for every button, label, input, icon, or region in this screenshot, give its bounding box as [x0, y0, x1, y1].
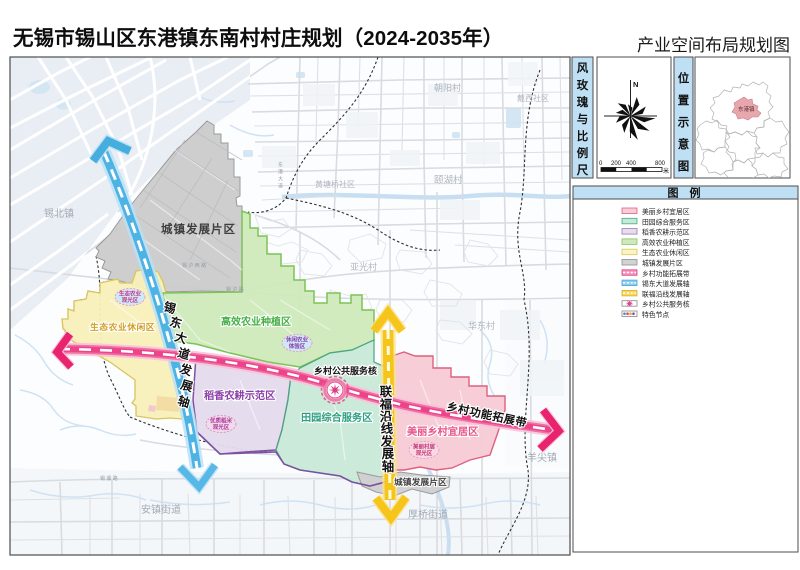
svg-text:城镇发展片区: 城镇发展片区: [394, 476, 447, 487]
svg-text:优质稻米: 优质稻米: [210, 417, 233, 425]
svg-text:产业空间布局规划图: 产业空间布局规划图: [637, 36, 790, 55]
svg-text:厚桥街道: 厚桥街道: [408, 508, 448, 521]
svg-text:戴西社区: 戴西社区: [517, 93, 549, 103]
svg-text:美丽村居: 美丽村居: [413, 443, 436, 451]
svg-text:锡东大道发展轴: 锡东大道发展轴: [642, 279, 690, 288]
svg-text:田园综合服务区: 田园综合服务区: [642, 217, 690, 226]
svg-text:锡 虞 路: 锡 虞 路: [100, 475, 118, 482]
svg-text:朝阳村: 朝阳村: [434, 82, 461, 93]
svg-text:锡 沪 西 路: 锡 沪 西 路: [182, 262, 206, 269]
svg-text:乡村公共服务核: 乡村公共服务核: [642, 300, 690, 309]
svg-text:休闲农业: 休闲农业: [285, 336, 309, 344]
svg-text:美丽乡村宜居区: 美丽乡村宜居区: [407, 425, 478, 438]
svg-text:生态农业休闲区: 生态农业休闲区: [642, 248, 690, 257]
svg-text:田园综合服务区: 田园综合服务区: [301, 411, 372, 424]
svg-text:联福沿线发展轴: 联福沿线发展轴: [642, 289, 690, 298]
svg-text:轴: 轴: [382, 459, 394, 474]
svg-text:无锡市锡山区东港镇东南村村庄规划（2024-2035年）: 无锡市锡山区东港镇东南村村庄规划（2024-2035年）: [13, 26, 503, 50]
svg-text:乡村功能拓展带: 乡村功能拓展带: [642, 269, 690, 278]
svg-text:羊尖镇: 羊尖镇: [527, 451, 557, 464]
svg-text:米: 米: [663, 167, 669, 175]
svg-text:观光区: 观光区: [122, 296, 139, 304]
svg-text:亚光村: 亚光村: [350, 261, 377, 272]
svg-text:颐湖村: 颐湖村: [434, 174, 463, 186]
svg-text:锡北镇: 锡北镇: [44, 207, 74, 220]
svg-text:展: 展: [382, 447, 395, 461]
svg-text:观光区: 观光区: [416, 449, 433, 457]
svg-text:稻香农耕示范区: 稻香农耕示范区: [642, 228, 690, 237]
svg-text:锡 沪 路: 锡 沪 路: [226, 286, 244, 293]
svg-text:美丽乡村宜居区: 美丽乡村宜居区: [642, 207, 690, 216]
svg-text:N: N: [633, 80, 638, 89]
svg-text:东港镇: 东港镇: [738, 105, 755, 113]
svg-text:联: 联: [380, 385, 393, 399]
svg-text:200: 200: [611, 161, 622, 167]
svg-text:观光区: 观光区: [213, 423, 230, 431]
svg-text:乡村公共服务核: 乡村公共服务核: [314, 365, 377, 376]
svg-text:体验区: 体验区: [289, 342, 306, 350]
svg-text:生态农业: 生态农业: [119, 290, 142, 298]
svg-text:高效农业种植区: 高效农业种植区: [642, 238, 690, 247]
svg-text:生态农业休闲区: 生态农业休闲区: [90, 321, 155, 332]
svg-text:400: 400: [626, 161, 637, 167]
svg-text:安镇街道: 安镇街道: [141, 503, 181, 516]
svg-text:稻香农耕示范区: 稻香农耕示范区: [204, 389, 275, 402]
svg-text:东港大道: 东港大道: [277, 161, 283, 190]
svg-text:线: 线: [381, 421, 394, 436]
svg-text:图 例: 图 例: [667, 186, 704, 200]
svg-text:城镇发展片区: 城镇发展片区: [161, 222, 236, 236]
svg-text:城镇发展片区: 城镇发展片区: [642, 259, 683, 268]
svg-text:特色节点: 特色节点: [642, 310, 669, 319]
svg-text:黄塘桥社区: 黄塘桥社区: [315, 179, 355, 189]
svg-text:华东村: 华东村: [468, 320, 495, 331]
svg-text:800: 800: [655, 161, 666, 167]
svg-text:高效农业种植区: 高效农业种植区: [221, 315, 291, 328]
